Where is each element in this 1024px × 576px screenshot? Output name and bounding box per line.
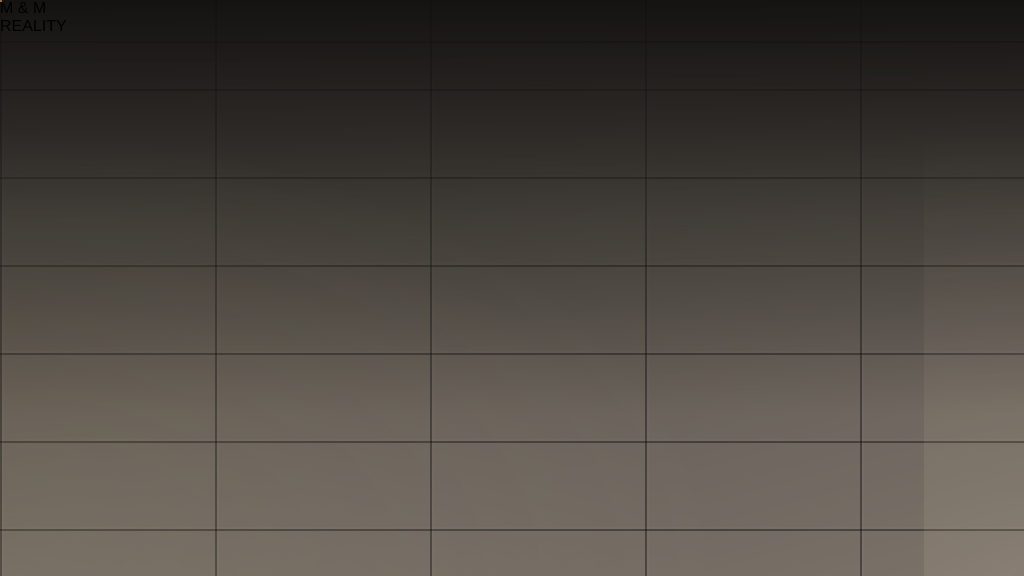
logo-m-left: M [0,0,13,17]
apartment-floorplan-render: M & M REALITY [0,0,1024,576]
logo-m-right: M [33,0,46,17]
mm-reality-logo: M & M REALITY [0,0,67,36]
logo-mm-row: M & M [0,0,67,18]
logo-ampersand: & [18,0,29,17]
bath-wood-cabinet [0,0,2,2]
logo-reality-bar: REALITY [0,18,67,36]
